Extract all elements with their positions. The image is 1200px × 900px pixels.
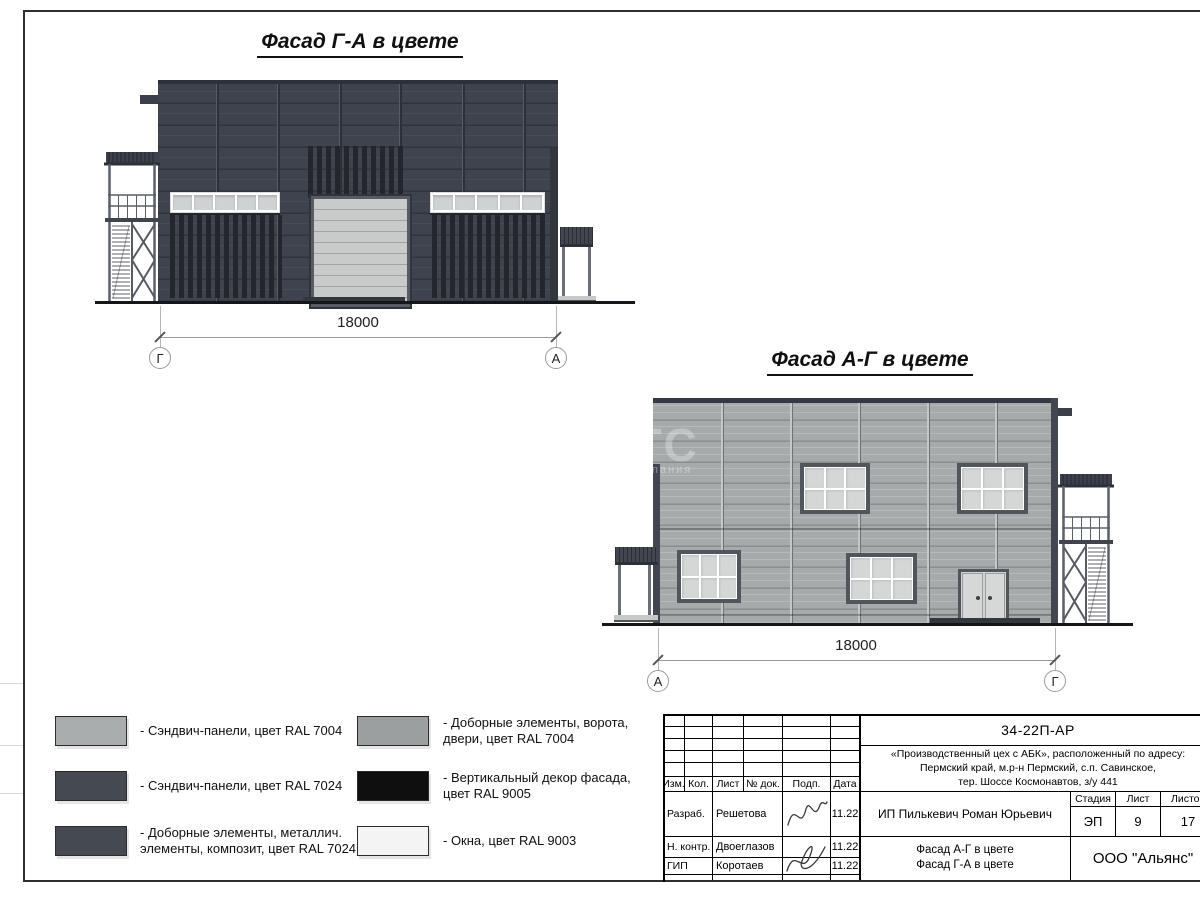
stamp-col-list: Лист (713, 776, 743, 791)
axis-marker-g: Г (149, 347, 171, 369)
signature (783, 793, 829, 835)
window-pane (846, 490, 865, 510)
window-pane (500, 195, 520, 210)
panel-joint (927, 403, 930, 623)
stamp-sheets-value: 17 (1161, 806, 1200, 836)
window-pane (522, 195, 542, 210)
window-pane (872, 580, 891, 600)
window-pane (851, 558, 870, 578)
vertical-decor-center (308, 146, 405, 198)
stamp-row-name: Двоеглазов (713, 837, 781, 856)
facade-ag-title-text: Фасад А-Г в цвете (767, 348, 972, 376)
legend-swatch (357, 771, 429, 801)
window-pane (173, 195, 192, 210)
legend-label: - Окна, цвет RAL 9003 (443, 826, 661, 856)
dimension-line (160, 337, 557, 338)
door-handle (976, 596, 980, 600)
legend-swatch (55, 771, 127, 801)
facade-ag-title: Фасад А-Г в цвете (735, 348, 1005, 376)
stamp-doc-code: 34-22П-АР (861, 716, 1200, 743)
stamp-row-name: Коротаев (713, 858, 781, 873)
panel-band-line (653, 528, 1058, 530)
legend-label: - Сэндвич-панели, цвет RAL 7004 (140, 716, 358, 746)
stamp-row-name: Решетова (713, 792, 781, 835)
margin-tick (0, 793, 23, 794)
stamp-sheet-title-line: Фасад А-Г в цвете (916, 843, 1014, 858)
extension-line (556, 306, 557, 348)
frame-left (23, 10, 25, 882)
facade-ga-title-text: Фасад Г-А в цвете (257, 30, 462, 58)
dimension-line (658, 660, 1056, 661)
legend-label: - Доборные элементы, ворота, двери, цвет… (443, 712, 661, 750)
canopy-base (614, 615, 658, 622)
legend-swatch (357, 716, 429, 746)
stamp-row-role: Разраб. (664, 792, 711, 835)
stamp-col-kol: Кол. (685, 776, 712, 791)
ground-line (95, 301, 635, 304)
dimension-value: 18000 (308, 314, 408, 331)
stamp-client: ИП Пилькевич Роман Юрьевич (860, 792, 1070, 835)
legend-swatch (55, 716, 127, 746)
window (677, 550, 741, 603)
window-pane (701, 578, 718, 599)
margin-tick (0, 683, 23, 684)
door-leaf (985, 573, 1006, 619)
margin-tick (0, 745, 23, 746)
window-band-left (170, 192, 280, 213)
window-pane (846, 468, 865, 488)
legend-swatch (55, 826, 127, 856)
stamp-project: «Производственный цех с АБК», расположен… (861, 746, 1200, 790)
facade-ag-building (653, 398, 1058, 623)
window-pane (983, 490, 1002, 510)
stamp-project-line: Пермский край, м.р-н Пермский, с.п. Сави… (920, 761, 1156, 775)
axis-letter: А (552, 351, 561, 366)
axis-marker-a: А (545, 347, 567, 369)
stamp-organization: ООО "Альянс" (1071, 837, 1200, 879)
window-pane (258, 195, 277, 210)
legend-label: - Доборные элементы, металлич. элементы,… (140, 822, 358, 860)
stair-tower (1058, 468, 1114, 625)
stamp-col-docno: № док. (744, 776, 782, 791)
axis-marker-a: А (647, 670, 669, 692)
signature (783, 837, 829, 879)
canopy (615, 547, 658, 565)
door-leaf (962, 573, 983, 619)
stamp-col-izm: Изм. (663, 776, 684, 791)
window-pane (433, 195, 453, 210)
legend-label: - Вертикальный декор фасада, цвет RAL 90… (443, 767, 661, 805)
window-pane (701, 555, 718, 576)
stamp-row-role: ГИП (664, 858, 711, 873)
frame-bottom (23, 880, 1200, 882)
facade-ga-building (158, 80, 558, 301)
window-pane (477, 195, 497, 210)
roof-bracket (1058, 408, 1072, 416)
door-handle (988, 596, 992, 600)
dimension-value: 18000 (806, 637, 906, 654)
axis-letter: Г (156, 351, 163, 366)
canopy (560, 227, 593, 247)
stamp-project-line: «Производственный цех с АБК», расположен… (891, 747, 1185, 761)
stamp-col-sign: Подп. (783, 776, 830, 791)
sectional-gate (311, 196, 410, 307)
ground-line (602, 623, 1133, 626)
extension-line (1055, 628, 1056, 670)
extension-line (160, 306, 161, 348)
window-pane (826, 468, 845, 488)
stamp-col-date: Дата (831, 776, 859, 791)
window-band-right (430, 192, 545, 213)
window-pane (893, 558, 912, 578)
window-pane (962, 468, 981, 488)
legend-swatch (357, 826, 429, 856)
stamp-stage-value: ЭП (1071, 806, 1115, 836)
window-pane (215, 195, 234, 210)
vertical-decor-right (432, 215, 545, 298)
window-pane (682, 578, 699, 599)
window-pane (719, 578, 736, 599)
stamp-project-line: тер. Шоссе Космонавтов, з/у 441 (958, 775, 1118, 789)
canopy-post (562, 247, 565, 297)
window-pane (962, 490, 981, 510)
roof-bracket (140, 95, 158, 104)
facade-ga-title: Фасад Г-А в цвете (225, 30, 495, 58)
window-pane (826, 490, 845, 510)
corner-pilaster (550, 148, 558, 301)
stamp-row-date: 11.22 (831, 837, 859, 856)
entrance-door (958, 569, 1009, 623)
window-pane (682, 555, 699, 576)
stamp-sheets-header: Листов (1161, 791, 1200, 806)
stamp-stage-header: Стадия (1071, 791, 1115, 806)
window-pane (805, 468, 824, 488)
window-pane (1004, 490, 1023, 510)
frame-top (23, 10, 1200, 12)
window-pane (194, 195, 213, 210)
canopy-post (618, 565, 621, 615)
window (957, 463, 1028, 514)
corner-pilaster (1051, 398, 1058, 623)
window (800, 463, 870, 514)
stamp-row-date: 11.22 (831, 858, 859, 873)
stamp-row-date: 11.22 (831, 792, 859, 835)
watermark-small: пания (652, 464, 692, 476)
vertical-decor-left (170, 215, 282, 298)
window-band-shadow (170, 213, 280, 215)
window-pane (851, 580, 870, 600)
stamp-sheet-header: Лист (1116, 791, 1160, 806)
stamp-sheet-value: 9 (1116, 806, 1160, 836)
axis-letter: Г (1051, 674, 1058, 689)
panel-joint (790, 403, 793, 623)
legend-label: - Сэндвич-панели, цвет RAL 7024 (140, 771, 358, 801)
window-pane (805, 490, 824, 510)
stamp-sheet-title: Фасад А-Г в цвете Фасад Г-А в цвете (860, 837, 1070, 879)
axis-letter: А (654, 674, 663, 689)
corner-pilaster (653, 464, 660, 623)
window-pane (1004, 468, 1023, 488)
window-pane (872, 558, 891, 578)
canopy-post (648, 565, 651, 615)
drawing-sheet: Фасад Г-А в цвете (0, 0, 1200, 900)
window-pane (237, 195, 256, 210)
axis-marker-g: Г (1044, 670, 1066, 692)
extension-line (658, 628, 659, 670)
window-pane (893, 580, 912, 600)
window (846, 553, 917, 604)
stair-tower (104, 148, 160, 304)
window-pane (455, 195, 475, 210)
window-pane (719, 555, 736, 576)
window-pane (983, 468, 1002, 488)
window-band-shadow (430, 213, 545, 215)
stamp-sheet-title-line: Фасад Г-А в цвете (916, 858, 1014, 873)
stamp-row-role: Н. контр. (664, 837, 711, 856)
canopy-post (588, 247, 591, 297)
